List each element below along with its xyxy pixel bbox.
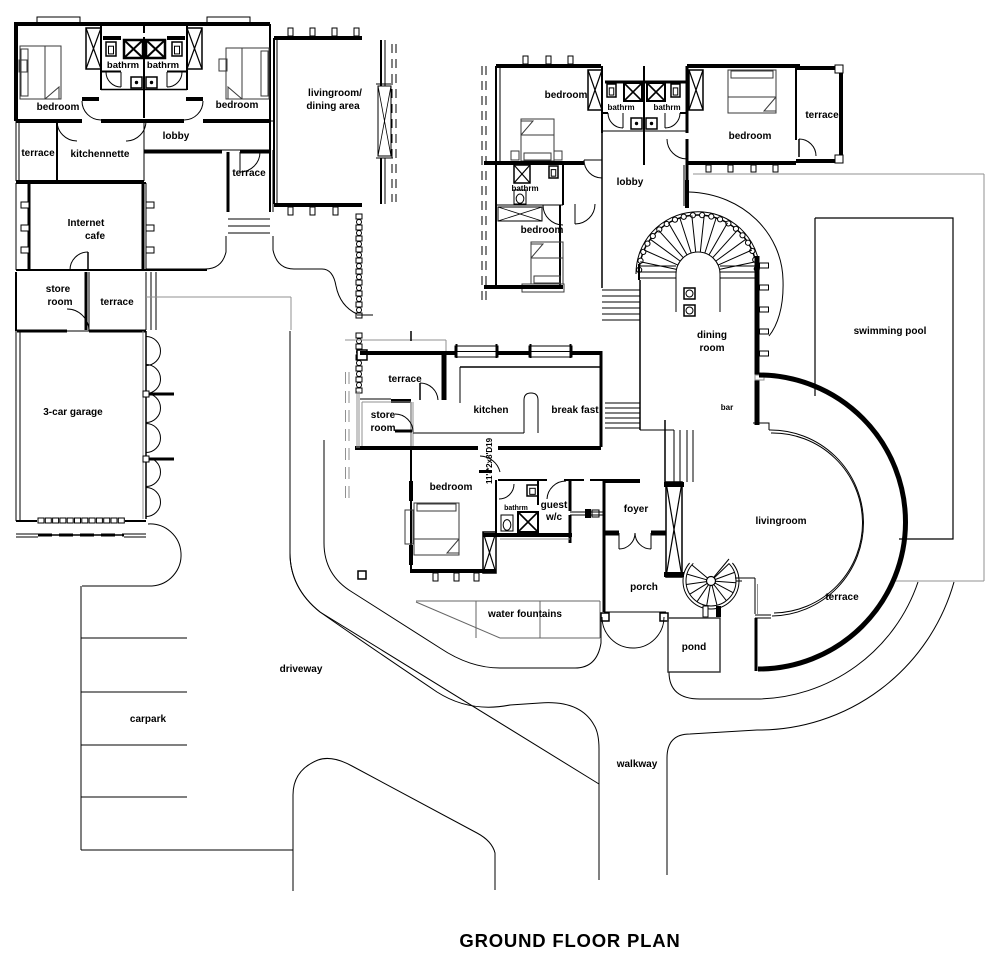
svg-text:cafe: cafe: [85, 231, 105, 242]
svg-text:porch: porch: [630, 582, 658, 593]
svg-text:bedroom: bedroom: [37, 102, 80, 113]
svg-text:Internet: Internet: [68, 218, 105, 229]
svg-text:swimming pool: swimming pool: [854, 326, 927, 337]
svg-text:kitchen: kitchen: [473, 405, 508, 416]
svg-text:room: room: [371, 423, 396, 434]
svg-text:dining area: dining area: [306, 101, 360, 112]
svg-text:room: room: [48, 297, 73, 308]
svg-text:bedroom: bedroom: [430, 482, 473, 493]
svg-text:store: store: [46, 284, 71, 295]
svg-text:foyer: foyer: [624, 504, 649, 515]
svg-text:lobby: lobby: [163, 131, 190, 142]
svg-text:terrace: terrace: [21, 148, 55, 159]
svg-text:livingroom: livingroom: [755, 516, 806, 527]
svg-text:terrace: terrace: [388, 374, 422, 385]
svg-text:bedroom: bedroom: [545, 90, 588, 101]
svg-text:terrace: terrace: [805, 110, 839, 121]
svg-text:kitchennette: kitchennette: [71, 149, 130, 160]
svg-text:bedroom: bedroom: [729, 131, 772, 142]
svg-text:bedroom: bedroom: [521, 225, 564, 236]
svg-text:bathrm: bathrm: [107, 60, 139, 71]
svg-text:break fast: break fast: [551, 405, 599, 416]
svg-text:walkway: walkway: [616, 759, 658, 770]
svg-text:3-car garage: 3-car garage: [43, 407, 103, 418]
svg-text:driveway: driveway: [280, 664, 323, 675]
svg-text:pond: pond: [682, 642, 706, 653]
svg-text:w/c: w/c: [545, 512, 563, 523]
svg-text:lobby: lobby: [617, 177, 644, 188]
svg-text:dining: dining: [697, 330, 727, 341]
svg-text:bathrm: bathrm: [653, 103, 680, 112]
svg-text:bar: bar: [721, 403, 733, 412]
svg-text:terrace: terrace: [100, 297, 134, 308]
svg-text:bathrm: bathrm: [511, 184, 538, 193]
svg-text:carpark: carpark: [130, 714, 167, 725]
svg-text:guest: guest: [541, 500, 568, 511]
svg-text:water fountains: water fountains: [487, 609, 562, 620]
svg-text:store: store: [371, 410, 396, 421]
svg-text:GROUND FLOOR PLAN: GROUND FLOOR PLAN: [459, 930, 680, 951]
svg-text:bathrm: bathrm: [147, 60, 179, 71]
svg-text:bathrm: bathrm: [607, 103, 634, 112]
svg-text:livingroom/: livingroom/: [308, 88, 362, 99]
svg-text:bedroom: bedroom: [216, 100, 259, 111]
svg-text:bathrm: bathrm: [504, 505, 528, 512]
svg-text:11'-*2x8'D19: 11'-*2x8'D19: [485, 437, 494, 484]
svg-text:room: room: [700, 343, 725, 354]
